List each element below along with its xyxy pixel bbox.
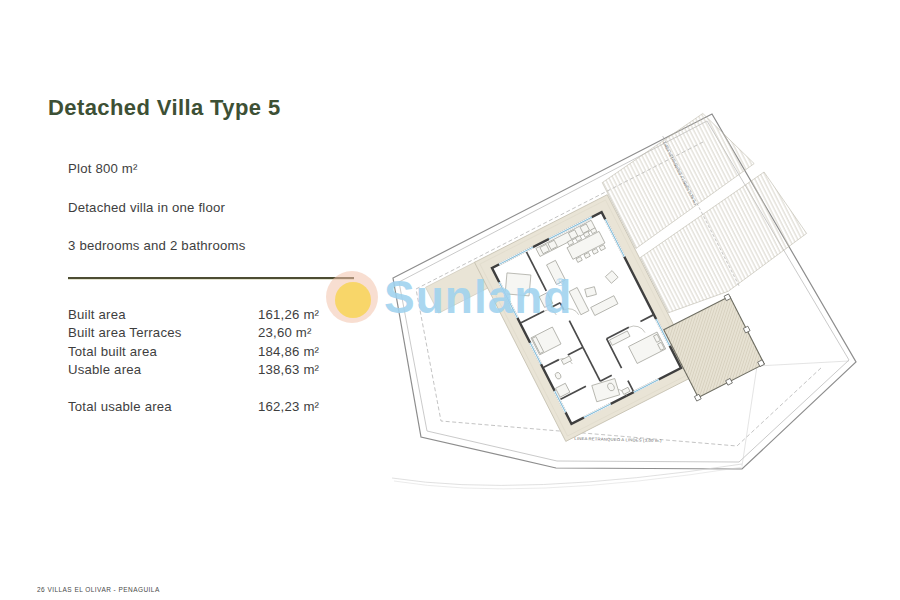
table-row-total: Total usable area 162,23 m² — [68, 398, 358, 417]
divider-line — [68, 277, 354, 280]
spec-rooms: 3 bedrooms and 2 bathrooms — [48, 238, 360, 253]
area-value: 184,86 m² — [258, 343, 319, 362]
page-title: Detached Villa Type 5 — [48, 95, 360, 121]
spec-panel: Detached Villa Type 5 Plot 800 m² Detach… — [48, 95, 360, 416]
table-row: Built area 161,26 m² — [68, 306, 358, 325]
area-label: Built area — [68, 306, 258, 325]
area-label: Total built area — [68, 343, 258, 362]
table-row: Usable area 138,63 m² — [68, 361, 358, 380]
area-label: Built area Terraces — [68, 324, 258, 343]
table-row: Built area Terraces 23,60 m² — [68, 324, 358, 343]
area-table: Built area 161,26 m² Built area Terraces… — [68, 306, 358, 417]
table-row: Total built area 184,86 m² — [68, 343, 358, 362]
spec-plot: Plot 800 m² — [48, 161, 360, 176]
area-label: Total usable area — [68, 398, 258, 417]
spec-floors: Detached villa in one floor — [48, 200, 360, 215]
area-value: 23,60 m² — [258, 324, 312, 343]
footer-project-name: 26 VILLAS EL OLIVAR - PENAGUILA — [37, 586, 160, 593]
area-value: 161,26 m² — [258, 306, 319, 325]
area-label: Usable area — [68, 361, 258, 380]
area-value: 138,63 m² — [258, 361, 319, 380]
area-value: 162,23 m² — [258, 398, 319, 417]
